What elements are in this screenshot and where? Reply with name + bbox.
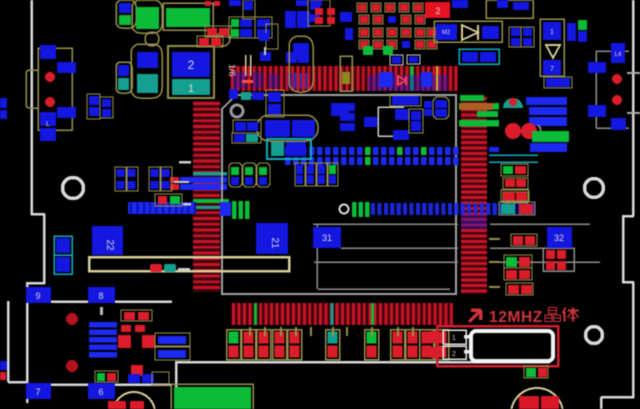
svg-text:9: 9 xyxy=(35,291,40,301)
svg-text:6: 6 xyxy=(98,387,103,397)
svg-text:21: 21 xyxy=(269,237,280,249)
svg-text:M2: M2 xyxy=(442,30,451,36)
svg-text:L: L xyxy=(46,121,50,128)
svg-text:2: 2 xyxy=(435,6,440,16)
svg-text:2: 2 xyxy=(452,351,456,358)
svg-text:1: 1 xyxy=(188,83,194,95)
svg-text:31: 31 xyxy=(322,233,332,243)
svg-text:1: 1 xyxy=(452,335,456,342)
svg-text:7: 7 xyxy=(35,387,40,397)
svg-text:32: 32 xyxy=(554,233,564,243)
svg-text:L4: L4 xyxy=(615,52,622,58)
svg-text:8: 8 xyxy=(98,291,103,301)
svg-text:22: 22 xyxy=(104,239,115,251)
svg-text:7: 7 xyxy=(550,66,554,73)
svg-text:1: 1 xyxy=(550,29,554,36)
svg-text:12MHZ: 12MHZ xyxy=(489,309,543,326)
svg-text:2: 2 xyxy=(188,58,195,72)
svg-text:1/6: 1/6 xyxy=(227,64,237,77)
